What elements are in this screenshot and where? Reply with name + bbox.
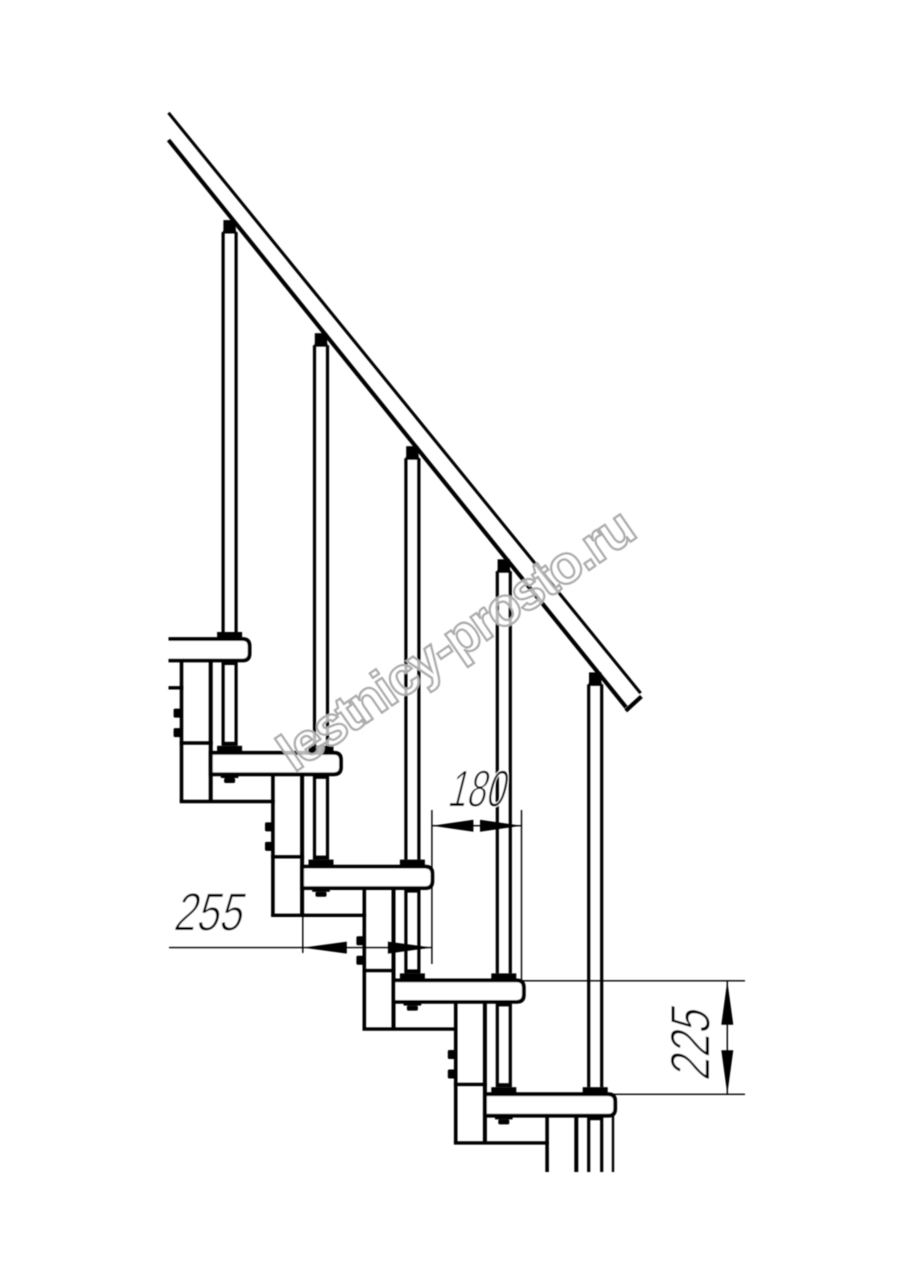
svg-text:255: 255 xyxy=(170,881,253,942)
svg-text:180: 180 xyxy=(444,760,515,818)
svg-text:225: 225 xyxy=(660,999,722,1084)
